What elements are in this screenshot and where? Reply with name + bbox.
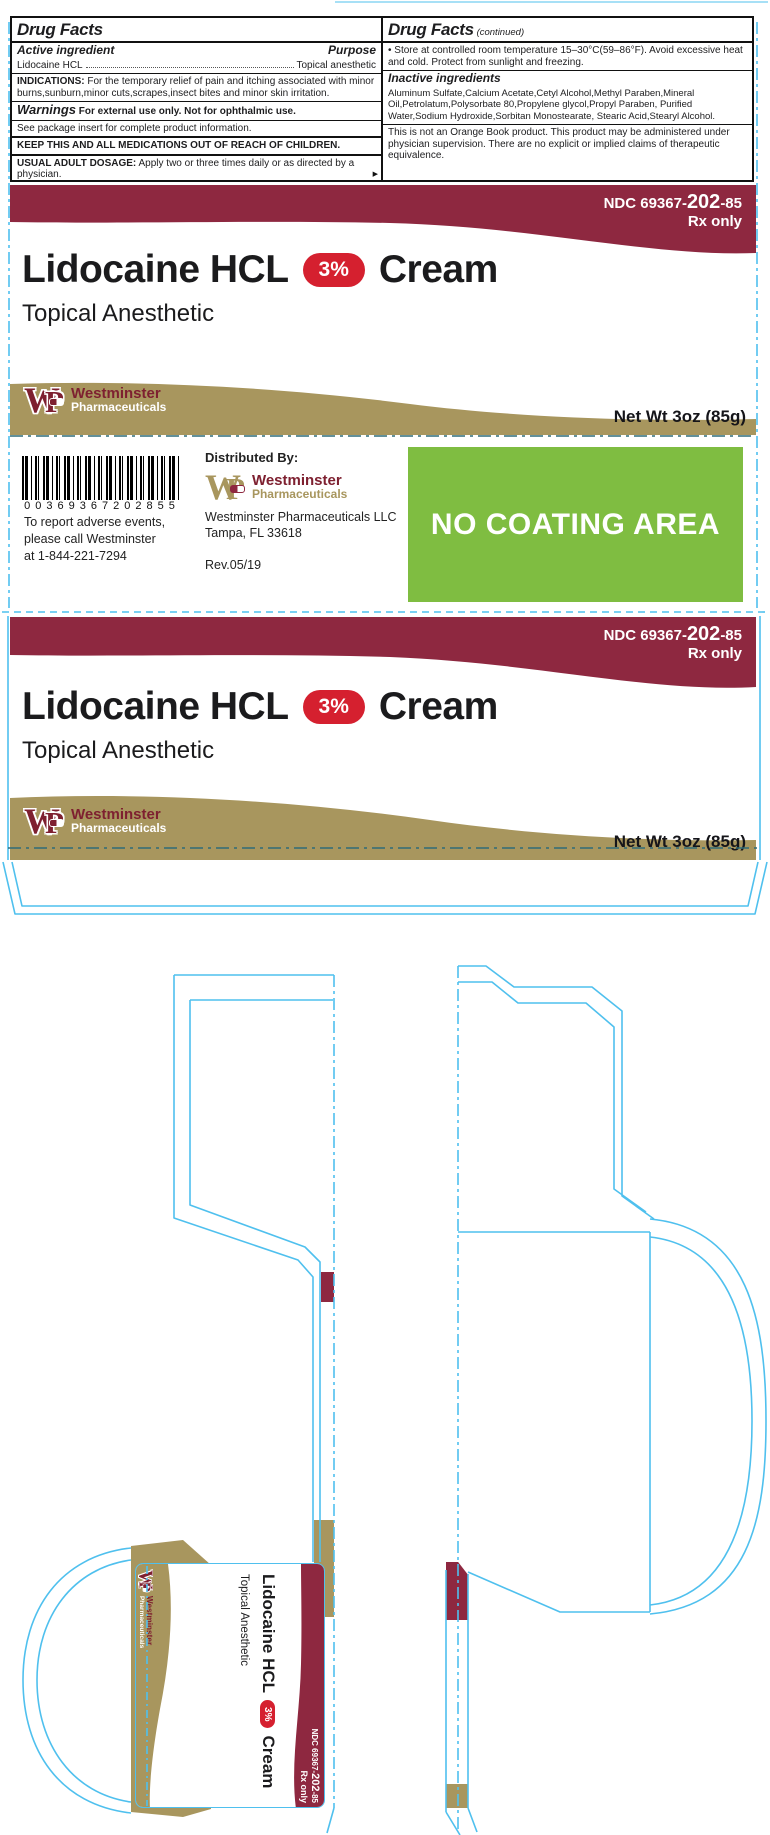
ndc-prefix: NDC 69367- [310,1729,319,1773]
dosage-form: Cream [258,1735,278,1788]
pill-icon [230,485,245,493]
gold-band-panel1: WP Westminster Pharmaceuticals Net Wt 3o… [10,378,756,435]
westminster-logo-distributor: WP Westminster Pharmaceuticals [205,469,397,505]
product-subtitle-1: Topical Anesthetic [22,300,214,328]
product-subtitle-2: Topical Anesthetic [22,737,214,765]
drug-facts-left-column: Drug Facts Active ingredient Purpose Lid… [10,16,383,182]
brand-names: Westminster Pharmaceuticals [252,473,347,501]
brand-name: Westminster [145,1596,153,1648]
storage-text: • Store at controlled room temperature 1… [388,45,743,68]
wp-monogram-icon: WP [24,382,64,418]
brand-division: Pharmaceuticals [138,1596,145,1648]
no-coating-area: NO COATING AREA [408,447,743,602]
active-ingredient-row: Lidocaine HCL Topical anesthetic [12,57,381,75]
dosage-row: USUAL ADULT DOSAGE: Apply two or three t… [12,156,381,183]
ndc-code: 202 [687,191,720,213]
active-ingredient-label: Active ingredient [17,45,114,57]
orange-book-text: This is not an Orange Book product. This… [388,127,730,161]
rotated-front-panel: NDC 69367-202-85 Rx only Lidocaine HCL 3… [135,1563,325,1808]
ndc-prefix: NDC 69367- [604,195,687,212]
dosage-form: Cream [379,685,498,729]
rx-only: Rx only [604,213,742,231]
product-title-row-2: Lidocaine HCL 3% Cream [22,685,498,729]
dieline-dust-flap [3,862,767,914]
ndc-code: 202 [687,623,720,645]
orange-book-row: This is not an Orange Book product. This… [383,125,752,180]
ndc-suffix: -85 [310,1791,319,1803]
adverse-events-note: To report adverse events, please call We… [24,514,165,565]
dieline-right-column [446,966,766,1835]
brand-name: Westminster [252,473,347,488]
drug-facts-right-column: Drug Facts (continued) • Store at contro… [381,16,754,182]
indications-label: INDICATIONS: [17,76,85,87]
drug-facts-continued-row: Drug Facts (continued) [383,18,752,43]
ndc-block: NDC 69367-202-85 Rx only [604,625,742,663]
westminster-logo: WP Westminster Pharmaceuticals [24,803,166,839]
pill-icon [143,1584,147,1592]
barcode-digits: 00369367202855 [22,500,182,512]
warnings-text: For external use only. Not for ophthalmi… [79,106,296,117]
no-coating-text: NO COATING AREA [431,508,720,542]
inactive-header-row: Inactive ingredients [383,71,752,86]
product-title-row-1: Lidocaine HCL 3% Cream [22,248,498,292]
dosage-form: Cream [379,248,498,292]
brand-division: Pharmaceuticals [252,488,347,501]
net-weight: Net Wt 3oz (85g) [614,407,746,427]
westminster-logo: WP Westminster Pharmaceuticals [24,382,166,418]
brand-names: Westminster Pharmaceuticals [71,807,166,835]
continue-arrow-icon: ▶ [373,169,378,181]
inactive-ingredients-label: Inactive ingredients [388,71,501,85]
warnings-label: Warnings [17,102,76,117]
inactive-list-row: Aluminum Sulfate,Calcium Acetate,Cetyl A… [383,86,752,126]
drug-facts-title-row: Drug Facts [12,18,381,43]
westminster-logo-mini: WP Westminster Pharmaceuticals [136,1570,156,1648]
keep-away-row: KEEP THIS AND ALL MEDICATIONS OUT OF REA… [12,138,381,156]
product-name: Lidocaine HCL [22,685,289,729]
drug-facts-panel: Drug Facts Active ingredient Purpose Lid… [10,16,756,182]
ndc-suffix: -85 [720,195,742,212]
warnings-row: Warnings For external use only. Not for … [12,102,381,121]
carton-label-artwork: Drug Facts Active ingredient Purpose Lid… [0,0,770,1835]
adverse-line: at 1-844-221-7294 [24,548,165,565]
brand-name: Westminster [71,807,166,822]
wp-monogram-icon: WP [205,469,245,505]
strength-badge: 3% [261,1700,276,1728]
pill-icon [49,398,64,406]
dieline-round-end [23,1548,131,1813]
adverse-line: please call Westminster [24,531,165,548]
adverse-line: To report adverse events, [24,514,165,531]
brand-division: Pharmaceuticals [71,401,166,414]
dosage-label: USUAL ADULT DOSAGE: [17,158,136,169]
wp-monogram-icon: WP [24,803,64,839]
company-city: Tampa, FL 33618 [205,525,397,541]
inactive-ingredients-text: Aluminum Sulfate,Calcium Acetate,Cetyl A… [388,88,715,122]
keep-away-text: KEEP THIS AND ALL MEDICATIONS OUT OF REA… [17,140,340,151]
strength-badge: 3% [303,253,365,287]
purpose-value: Topical anesthetic [297,60,377,72]
active-ingredient-header-row: Active ingredient Purpose [12,43,381,57]
drug-facts-continued-title: Drug Facts [388,20,474,39]
product-title-row-mini: Lidocaine HCL 3% Cream [258,1574,278,1788]
revision-code: Rev.05/19 [205,557,397,573]
product-name: Lidocaine HCL [258,1574,278,1693]
rx-only: Rx only [298,1729,309,1803]
purpose-label: Purpose [328,45,376,57]
ndc-code: 202 [309,1773,321,1791]
brand-names: Westminster Pharmaceuticals [71,386,166,414]
rotated-panel-content: NDC 69367-202-85 Rx only Lidocaine HCL 3… [136,1564,325,1808]
rx-only: Rx only [604,645,742,663]
distributed-by-label: Distributed By: [205,450,397,466]
print-mark-maroon-left [321,1272,334,1302]
continued-suffix: (continued) [477,27,525,38]
storage-row: • Store at controlled room temperature 1… [383,43,752,71]
distributor-block: Distributed By: WP Westminster Pharmaceu… [205,450,397,573]
ndc-suffix: -85 [720,627,742,644]
brand-names: Westminster Pharmaceuticals [138,1596,153,1648]
print-mark-maroon-right [446,1562,468,1620]
product-name: Lidocaine HCL [22,248,289,292]
indications-row: INDICATIONS: For the temporary relief of… [12,74,381,102]
net-weight: Net Wt 3oz (85g) [614,832,746,852]
package-insert-row: See package insert for complete product … [12,121,381,139]
gold-band-panel2: WP Westminster Pharmaceuticals Net Wt 3o… [10,790,756,860]
brand-name: Westminster [71,386,166,401]
ndc-prefix: NDC 69367- [604,627,687,644]
maroon-band-panel1: NDC 69367-202-85 Rx only [10,185,756,257]
pill-icon [49,819,64,827]
maroon-band-panel2: NDC 69367-202-85 Rx only [10,617,756,693]
ndc-block: NDC 69367-202-85 Rx only [298,1729,322,1803]
strength-badge: 3% [303,690,365,724]
active-ingredient-name: Lidocaine HCL [17,60,83,72]
drug-facts-title: Drug Facts [17,20,103,39]
dotted-leader [86,59,294,68]
barcode [22,456,182,500]
ndc-block: NDC 69367-202-85 Rx only [604,193,742,231]
print-mark-gold-right [446,1784,468,1808]
package-insert-note: See package insert for complete product … [17,123,252,134]
brand-division: Pharmaceuticals [71,822,166,835]
product-subtitle-mini: Topical Anesthetic [238,1574,250,1666]
wp-monogram-icon: WP [136,1570,156,1592]
company-name: Westminster Pharmaceuticals LLC [205,509,397,525]
